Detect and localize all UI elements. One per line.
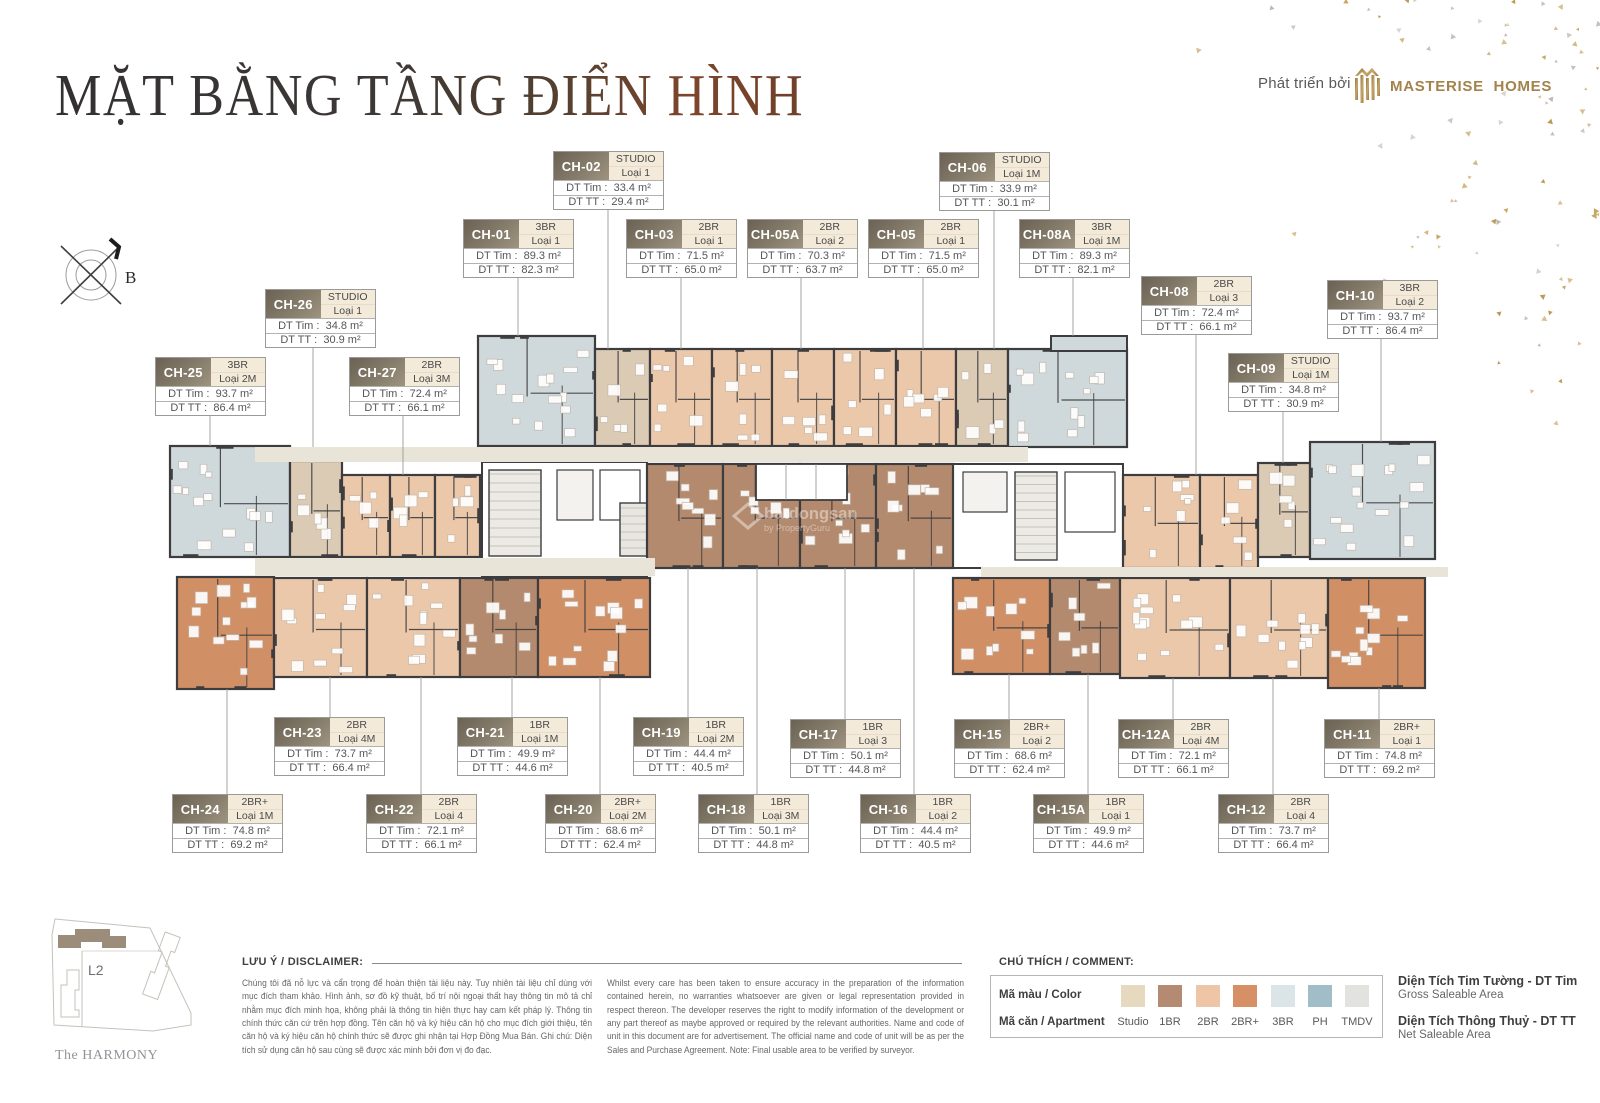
- svg-text:L2: L2: [88, 962, 104, 978]
- svg-text:batdongsan: batdongsan: [764, 505, 858, 523]
- svg-text:by PropertyGuru: by PropertyGuru: [764, 523, 830, 533]
